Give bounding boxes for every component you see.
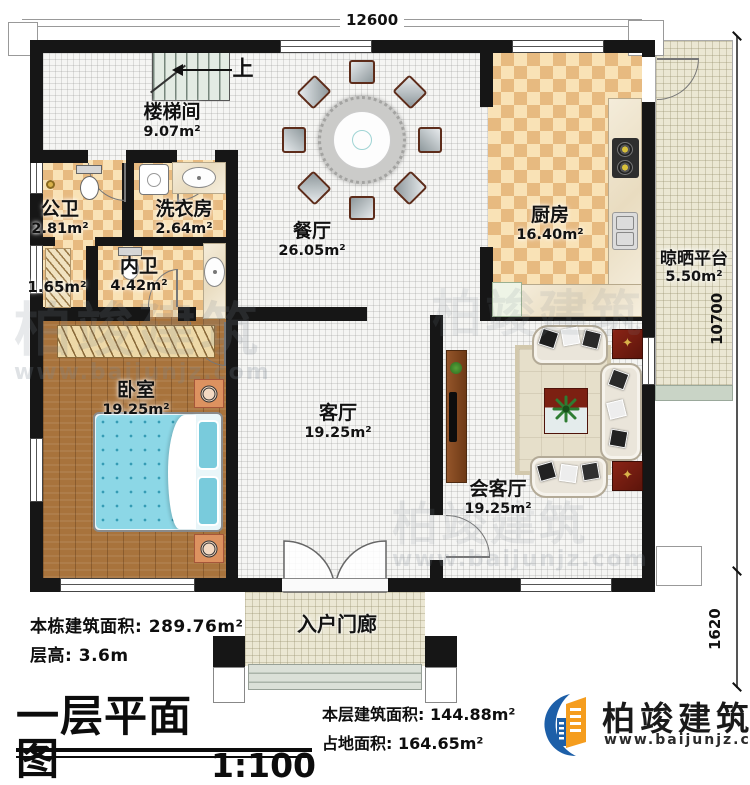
- porch-pillar: [425, 636, 457, 667]
- coffee-table-plant: [552, 395, 580, 423]
- eave-line: [22, 19, 642, 20]
- side-table: ✦: [612, 461, 643, 491]
- room-label-public-bath: 公卫2.81m²: [31, 198, 88, 238]
- room-label-reception: 会客厅19.25m²: [464, 478, 531, 518]
- door-leaf: [657, 58, 699, 60]
- scale-label: 1:100: [211, 749, 316, 782]
- toilet: [80, 176, 99, 200]
- door-leaf: [446, 556, 490, 558]
- pillow: [197, 476, 219, 526]
- staircase: [152, 53, 230, 101]
- sofa-cushion: [559, 464, 578, 483]
- kitchen-sink-basin: [616, 232, 634, 246]
- wall: [430, 560, 443, 578]
- door-leaf: [224, 322, 226, 366]
- wardrobe: [57, 325, 215, 358]
- ensuite-sink: [204, 257, 225, 287]
- dimension-line-right: [736, 36, 738, 688]
- toilet-tank: [76, 165, 102, 174]
- kitchen-counter-bottom: [520, 284, 642, 317]
- window: [520, 578, 612, 592]
- room-label-porch: 入户门廊: [297, 612, 377, 636]
- window: [30, 438, 43, 502]
- dimension-bottom-right: 1620: [706, 598, 724, 650]
- porch-pillar: [213, 636, 245, 667]
- door-leaf: [124, 163, 126, 202]
- nightstand: [194, 534, 224, 563]
- wall: [30, 40, 43, 152]
- cabinet-plant: [450, 362, 462, 374]
- door-leaf: [176, 269, 178, 307]
- porch-steps: [248, 664, 422, 690]
- sofa-cushion: [581, 462, 601, 482]
- brand-logo-icon: [540, 688, 598, 760]
- sofa-cushion: [561, 327, 581, 347]
- room-label-dining: 餐厅26.05m²: [278, 220, 345, 260]
- wall: [642, 40, 655, 57]
- brand-url: www.baijunjz.com: [604, 732, 750, 748]
- wall: [642, 102, 655, 337]
- sofa-cushion: [609, 429, 629, 449]
- stove-burner: [617, 160, 633, 175]
- entrance-threshold: [282, 578, 388, 592]
- wall: [238, 307, 367, 321]
- wall: [195, 578, 282, 592]
- laundry-sink: [182, 167, 216, 188]
- building-area-line: 本栋建筑面积: 289.76m²: [30, 612, 244, 637]
- wall: [30, 40, 280, 53]
- wall: [430, 315, 443, 515]
- wall: [642, 385, 655, 592]
- room-label-kitchen: 厨房16.40m²: [516, 204, 583, 244]
- footprint-line: 占地面积: 164.65m²: [322, 730, 483, 754]
- pillow: [197, 420, 219, 470]
- dining-chair: [349, 196, 375, 220]
- wall: [226, 150, 238, 578]
- room-label-stairwell: 楼梯间9.07m²: [143, 101, 200, 141]
- room-label-laundry: 洗衣房2.64m²: [155, 198, 212, 238]
- title-underline-thick: [16, 748, 312, 752]
- brand-logo: 柏竣建筑 www.baijunjz.com: [540, 686, 748, 762]
- kitchen-sink-basin: [616, 216, 634, 230]
- wall: [178, 307, 196, 321]
- room-label-bedroom: 卧室19.25m²: [102, 379, 169, 419]
- wall: [43, 237, 55, 246]
- stairs-direction-line: [182, 69, 232, 71]
- porch-pillar-base: [425, 667, 457, 703]
- eave-line: [22, 26, 642, 27]
- wall: [126, 150, 177, 163]
- wall: [388, 578, 520, 592]
- wall: [86, 246, 98, 310]
- title-underline-thin: [16, 756, 312, 758]
- nightstand: [194, 379, 224, 408]
- window: [642, 337, 655, 385]
- window: [512, 40, 604, 53]
- wall: [30, 150, 88, 163]
- dining-chair: [418, 127, 442, 153]
- floor-area-line: 本层建筑面积: 144.88m²: [322, 701, 515, 725]
- dimension-top: 12600: [340, 11, 404, 29]
- fridge: [492, 282, 522, 317]
- ac-platform-box: [656, 546, 702, 586]
- washing-machine-drum: [147, 173, 161, 187]
- wall: [480, 40, 493, 107]
- tv: [449, 392, 457, 442]
- dining-chair: [282, 127, 306, 153]
- stairs-up-label: 上: [233, 56, 254, 81]
- bed-sheet-fold: [168, 415, 196, 529]
- platform-step: [655, 385, 733, 401]
- wall: [30, 578, 60, 592]
- room-label-closet: 1.65m²: [27, 278, 86, 296]
- dining-table-center: [352, 130, 372, 150]
- stove-burner: [617, 142, 633, 157]
- dimension-right: 10700: [708, 275, 726, 345]
- title-row: 一层平面图 1:100: [16, 696, 316, 782]
- window: [60, 578, 195, 592]
- room-label-living: 客厅19.25m²: [304, 402, 371, 442]
- room-label-ensuite: 内卫4.42m²: [110, 255, 167, 295]
- side-table: ✦: [612, 329, 643, 359]
- dining-chair: [349, 60, 375, 84]
- light-fixture: [46, 180, 55, 189]
- kitchen-counter-right: [608, 98, 642, 310]
- page-title: 一层平面图: [16, 696, 197, 782]
- window: [280, 40, 372, 53]
- wall: [30, 307, 150, 321]
- stairs-arrow-head: [172, 64, 183, 76]
- floor-height-line: 层高: 3.6m: [30, 641, 129, 666]
